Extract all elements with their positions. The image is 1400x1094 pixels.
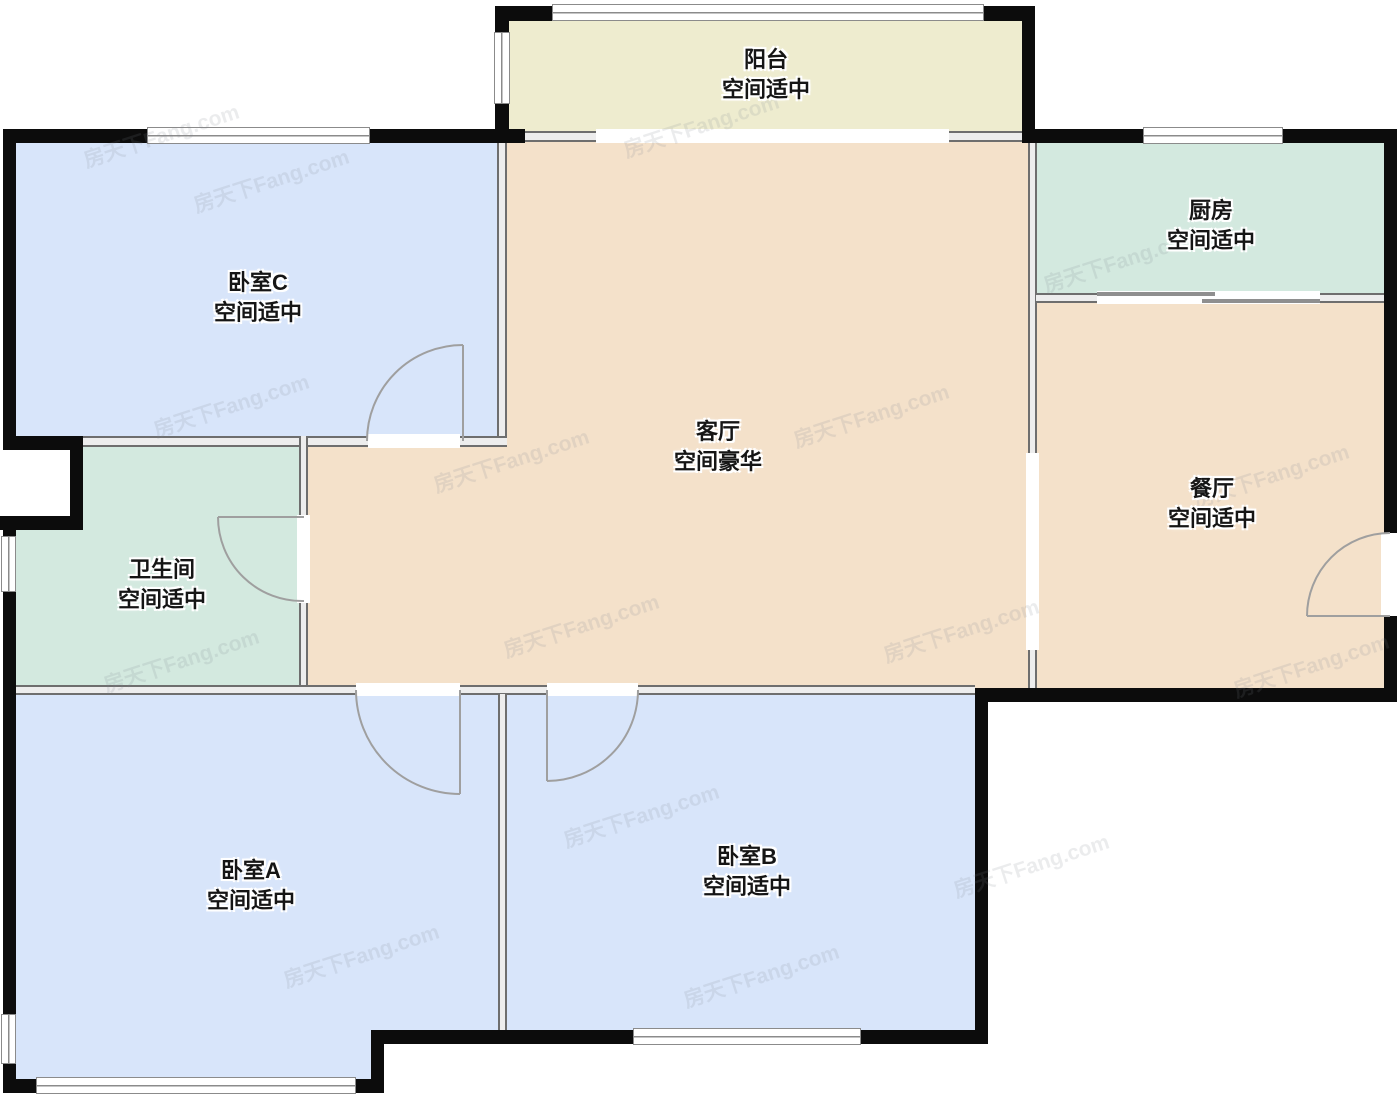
room-rating: 空间适中 xyxy=(703,872,791,902)
room-label-bathroom: 卫生间 空间适中 xyxy=(118,555,206,615)
bedroom-b-door-arc xyxy=(547,690,638,781)
room-name: 卫生间 xyxy=(118,555,206,585)
room-rating: 空间适中 xyxy=(214,298,302,328)
bedroom-a-door-arc xyxy=(356,690,460,794)
room-name: 客厅 xyxy=(674,417,762,447)
room-label-dining: 餐厅 空间适中 xyxy=(1168,474,1256,534)
room-rating: 空间适中 xyxy=(118,585,206,615)
room-name: 餐厅 xyxy=(1168,474,1256,504)
room-rating: 空间适中 xyxy=(207,886,295,916)
room-rating: 空间适中 xyxy=(1167,226,1255,256)
room-name: 卧室A xyxy=(207,856,295,886)
door-arcs-layer xyxy=(0,0,1400,1094)
room-label-kitchen: 厨房 空间适中 xyxy=(1167,196,1255,256)
room-rating: 空间适中 xyxy=(722,75,810,105)
bathroom-door-arc xyxy=(218,517,304,601)
room-label-living: 客厅 空间豪华 xyxy=(674,417,762,477)
room-name: 卧室C xyxy=(214,268,302,298)
room-rating: 空间适中 xyxy=(1168,504,1256,534)
room-name: 卧室B xyxy=(703,842,791,872)
bedroom-c-door-arc xyxy=(367,345,463,441)
room-name: 厨房 xyxy=(1167,196,1255,226)
entry-door-arc xyxy=(1307,533,1390,616)
room-label-bedroom-a: 卧室A 空间适中 xyxy=(207,856,295,916)
room-label-balcony: 阳台 空间适中 xyxy=(722,45,810,105)
room-rating: 空间豪华 xyxy=(674,447,762,477)
floor-plan: 阳台 空间适中 卧室C 空间适中 厨房 空间适中 客厅 空间豪华 餐厅 空间适中… xyxy=(0,0,1400,1094)
room-label-bedroom-b: 卧室B 空间适中 xyxy=(703,842,791,902)
room-name: 阳台 xyxy=(722,45,810,75)
room-label-bedroom-c: 卧室C 空间适中 xyxy=(214,268,302,328)
